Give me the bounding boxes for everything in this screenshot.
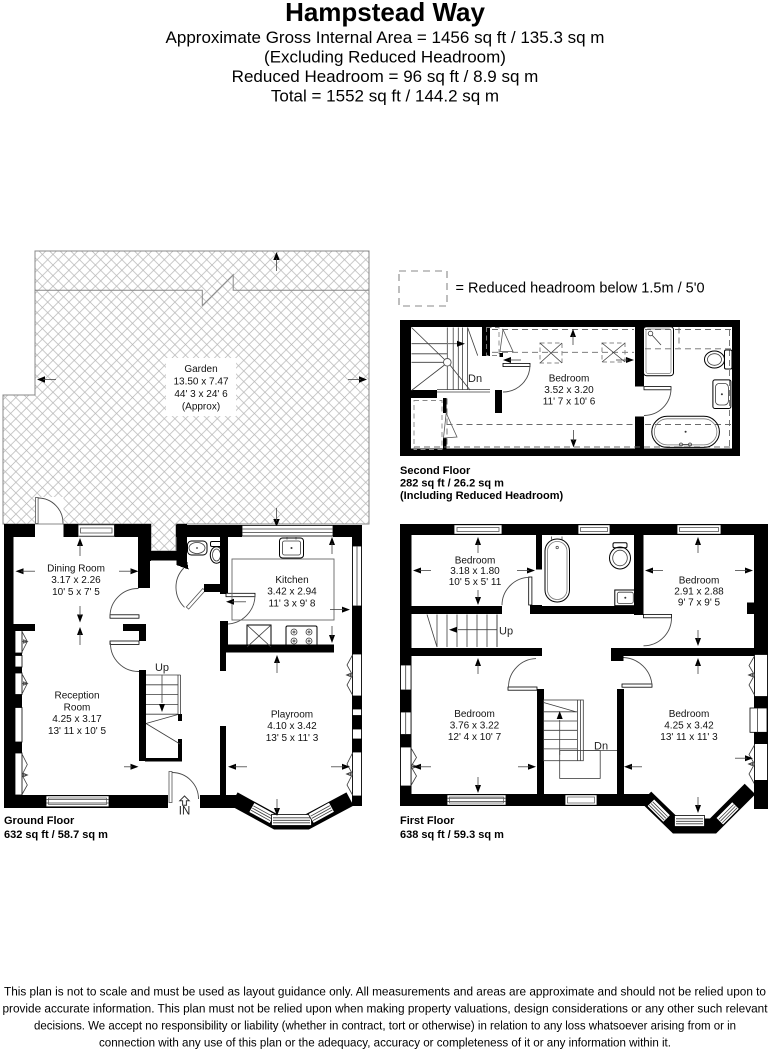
svg-text:3.52 x 3.20: 3.52 x 3.20 (544, 385, 594, 396)
svg-text:638 sq ft / 59.3 sq m: 638 sq ft / 59.3 sq m (400, 829, 504, 841)
svg-text:3.76 x 3.22: 3.76 x 3.22 (450, 721, 500, 732)
svg-text:Bedroom: Bedroom (455, 555, 496, 566)
svg-text:Dining Room: Dining Room (47, 564, 105, 575)
svg-text:10' 5 x 5' 11: 10' 5 x 5' 11 (449, 577, 502, 588)
svg-text:Garden: Garden (184, 364, 217, 375)
svg-text:3.42 x 2.94: 3.42 x 2.94 (267, 587, 317, 598)
svg-text:Total = 1552 sq ft / 144.2 sq: Total = 1552 sq ft / 144.2 sq m (271, 87, 499, 106)
svg-text:Dn: Dn (468, 373, 482, 385)
svg-text:Bedroom: Bedroom (454, 709, 495, 720)
svg-text:This plan is not to scale and: This plan is not to scale and must be us… (4, 985, 766, 999)
svg-text:Up: Up (499, 626, 513, 638)
svg-text:282 sq ft / 26.2 sq m: 282 sq ft / 26.2 sq m (400, 477, 504, 489)
svg-text:632 sq ft / 58.7 sq m: 632 sq ft / 58.7 sq m (4, 829, 108, 841)
svg-text:Playroom: Playroom (271, 710, 313, 721)
svg-text:decisions. We accept no respon: decisions. We accept no responsibility o… (34, 1019, 736, 1033)
svg-text:First Floor: First Floor (400, 815, 455, 827)
svg-text:44' 3 x 24' 6: 44' 3 x 24' 6 (174, 389, 228, 400)
svg-text:(Excluding Reduced Headroom): (Excluding Reduced Headroom) (264, 48, 506, 67)
svg-text:(Including Reduced Headroom): (Including Reduced Headroom) (400, 490, 564, 502)
svg-text:Reduced Headroom = 96 sq ft /: Reduced Headroom = 96 sq ft / 8.9 sq m (232, 67, 539, 86)
svg-text:Ground Floor: Ground Floor (4, 815, 75, 827)
svg-text:4.25 x 3.42: 4.25 x 3.42 (664, 720, 714, 731)
svg-text:Bedroom: Bedroom (679, 576, 720, 587)
svg-text:Kitchen: Kitchen (275, 575, 308, 586)
svg-text:13' 11 x 10' 5: 13' 11 x 10' 5 (48, 726, 107, 737)
svg-text:3.17 x 2.26: 3.17 x 2.26 (51, 575, 101, 586)
svg-text:Dn: Dn (594, 741, 608, 753)
svg-text:Bedroom: Bedroom (549, 374, 590, 385)
svg-text:12' 4 x 10' 7: 12' 4 x 10' 7 (448, 732, 502, 743)
svg-text:4.10 x 3.42: 4.10 x 3.42 (267, 721, 317, 732)
svg-text:Up: Up (155, 662, 169, 674)
svg-text:connection with any use of thi: connection with any use of this plan or … (99, 1036, 671, 1050)
svg-text:9' 7 x 9' 5: 9' 7 x 9' 5 (678, 597, 721, 608)
svg-text:11' 7 x 10' 6: 11' 7 x 10' 6 (543, 396, 596, 407)
svg-text:Second Floor: Second Floor (400, 465, 471, 477)
svg-text:10' 5 x 7' 5: 10' 5 x 7' 5 (52, 587, 100, 598)
svg-text:provide accurate information.: provide accurate information. This plan … (3, 1002, 769, 1016)
svg-text:IN: IN (179, 806, 191, 818)
svg-text:3.18 x 1.80: 3.18 x 1.80 (450, 566, 500, 577)
svg-text:13.50 x 7.47: 13.50 x 7.47 (173, 377, 228, 388)
svg-text:Bedroom: Bedroom (669, 709, 710, 720)
svg-text:= Reduced headroom below 1.5m: = Reduced headroom below 1.5m / 5'0 (456, 281, 705, 297)
svg-text:11' 3 x 9' 8: 11' 3 x 9' 8 (269, 598, 316, 609)
svg-text:Reception: Reception (54, 691, 99, 702)
svg-text:Room: Room (64, 702, 91, 713)
svg-text:Approximate Gross Internal Are: Approximate Gross Internal Area = 1456 s… (166, 28, 605, 47)
svg-text:Hampstead Way: Hampstead Way (285, 0, 485, 27)
svg-text:4.25 x 3.17: 4.25 x 3.17 (52, 714, 102, 725)
svg-text:2.91 x 2.88: 2.91 x 2.88 (674, 586, 724, 597)
svg-text:13' 11 x 11' 3: 13' 11 x 11' 3 (660, 732, 718, 743)
svg-text:(Approx): (Approx) (182, 402, 220, 413)
svg-text:13' 5 x 11' 3: 13' 5 x 11' 3 (266, 733, 319, 744)
